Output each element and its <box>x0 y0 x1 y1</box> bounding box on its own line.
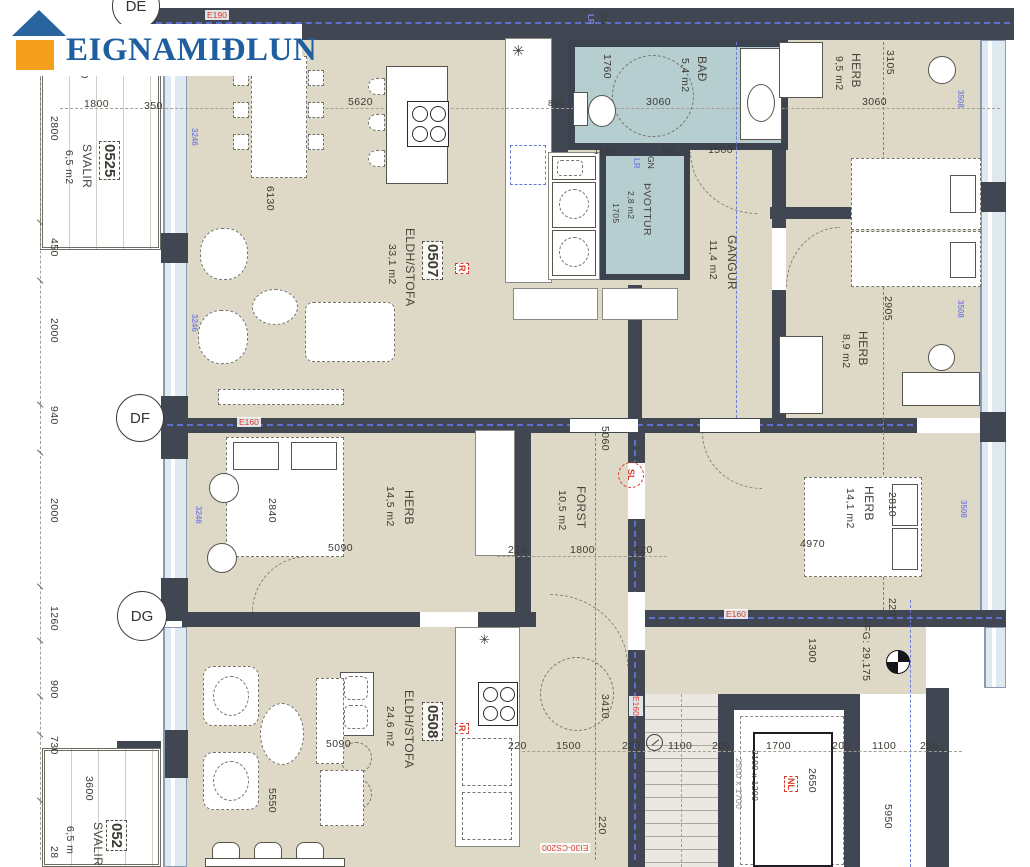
window-tag-3508: 3508 <box>959 500 968 518</box>
elevator-shaft-size: 2500 x 1700 <box>734 758 744 809</box>
sofa-0508 <box>316 678 344 764</box>
fire-tag-ei30: EI30-CS200 <box>540 843 590 853</box>
dim-120-forst: 120 <box>634 544 653 556</box>
dim-bc-1500: 1500 <box>556 740 581 752</box>
armchair <box>198 310 248 364</box>
dim-chain-top <box>60 108 1000 109</box>
door-tag-gn: GN <box>599 12 609 25</box>
toilet <box>573 92 588 126</box>
wardrobe-herb89 <box>779 336 823 414</box>
wall-pier-left-1 <box>161 233 188 263</box>
room-name-0508: ELDH/STOFA <box>402 690 416 768</box>
room-name-0507: ELDH/STOFA <box>403 228 417 306</box>
dim-bc-1700: 1700 <box>766 740 791 752</box>
dim-1760: 1760 <box>601 54 613 79</box>
dim-left-2000b: 2000 <box>48 498 60 523</box>
logo-roof-icon <box>12 10 66 36</box>
dim-1705: 1705 <box>611 203 621 224</box>
chair-herb145 <box>209 473 239 503</box>
dining-chair-0508 <box>254 842 282 859</box>
wall-mullion-right-1 <box>980 182 1006 212</box>
room-name-pvottur: ÞVOTTUR <box>641 183 653 236</box>
dining-table-0508 <box>205 858 345 867</box>
door-opening-0508 <box>420 612 478 627</box>
wardrobe-herb145 <box>475 430 515 556</box>
dim-2840: 2840 <box>266 498 278 523</box>
centerline-4 <box>910 600 911 867</box>
sofa <box>305 302 395 362</box>
brand-logo: EIGNAMIÐLUN <box>8 6 300 74</box>
oval-table-0508 <box>260 703 304 765</box>
fire-tag-e160-entry: E160 <box>724 609 748 619</box>
dim-chain-forst <box>497 556 667 557</box>
dim-220-wall: 220 <box>886 598 898 617</box>
window-left-upper <box>163 40 187 418</box>
armchair-0508 <box>203 666 259 726</box>
armchair <box>200 228 248 280</box>
floor-level-ffg: FFG: 29,175 <box>860 618 872 681</box>
coffee-table <box>252 289 298 325</box>
dim-5060: 5060 <box>599 426 611 451</box>
desk-herb89 <box>902 372 980 406</box>
sl-label: SL <box>626 469 636 481</box>
room-area-herb95: 9,5 m2 <box>833 56 845 91</box>
wall-mullion-right-2 <box>980 412 1006 442</box>
room-area-bad: 5,4 m2 <box>679 58 691 93</box>
dim-1800: 1800 <box>84 98 109 110</box>
dim-left-900: 900 <box>48 680 60 699</box>
dim-145: 145 <box>661 146 676 156</box>
elevator-cab-size: 2100 x 1200 <box>750 750 760 801</box>
grid-marker-df: DF <box>116 394 164 442</box>
dim-5090-0508: 5090 <box>326 738 351 750</box>
dim-3060-herb95: 3060 <box>862 96 887 108</box>
elevator-wall-top <box>718 694 860 710</box>
centerline-1 <box>736 42 737 418</box>
dining-chair <box>308 70 324 86</box>
dim-bc-200b: 200 <box>832 740 851 752</box>
smoke-detector-0508: R <box>455 723 469 734</box>
grid-marker-df-label: DF <box>130 410 150 427</box>
chair-herb145 <box>207 543 237 573</box>
room-area-gangur: 11,4 m2 <box>707 240 719 280</box>
dim-4970: 4970 <box>800 538 825 550</box>
dim-1500-gangur: 1500 <box>708 144 733 156</box>
dim-2650: 2650 <box>806 768 818 793</box>
door-tag-lr-pvottur: LR <box>632 158 641 169</box>
room-area-forst: 10,5 m2 <box>556 490 568 531</box>
dining-chair <box>308 134 324 150</box>
tv-bench <box>218 389 344 405</box>
dim-bc-1100b: 1100 <box>872 740 896 752</box>
room-area-pvottur: 2,8 m2 <box>626 191 636 219</box>
dim-220-stairwall: 220 <box>596 816 608 835</box>
wall-forst-west <box>515 433 531 618</box>
window-tag-3508: 3508 <box>956 90 965 108</box>
dim-2905: 2905 <box>882 296 894 321</box>
unit-id-0525: 0525 <box>99 141 120 180</box>
unit-id-052x: 052 <box>106 820 127 851</box>
kitchen-cabinet-0508 <box>462 792 512 840</box>
dim-left-730: 730 <box>48 736 60 755</box>
chair-herb95 <box>928 56 956 84</box>
hall-closet-2 <box>602 288 678 320</box>
room-name-herb89: HERB <box>856 331 870 366</box>
elevator-wall-right <box>844 694 860 867</box>
dim-bc-250: 250 <box>920 740 939 752</box>
window-tag-3246: 3246 <box>190 128 199 146</box>
dim-5620: 5620 <box>348 96 373 108</box>
fire-tag-e160-stair: E160 <box>629 696 643 716</box>
dim-220-forst: 220 <box>508 544 527 556</box>
north-symbol <box>886 650 910 674</box>
window-right-lower <box>984 627 1006 688</box>
armchair-0508 <box>203 752 259 810</box>
grid-marker-dg-label: DG <box>131 608 154 625</box>
stair-centerline <box>681 694 682 867</box>
sliding-door-marker-sl: SL <box>618 462 644 488</box>
dim-left-940: 940 <box>48 406 60 425</box>
bar-stool <box>368 78 385 95</box>
wall-mid-fire-dashes <box>167 424 913 426</box>
dim-3105: 3105 <box>884 50 896 75</box>
side-table-0508 <box>320 770 364 826</box>
dining-chair <box>233 102 249 118</box>
room-name-svalir-low: SVALIR <box>91 822 105 866</box>
wardrobe-herb95 <box>779 42 823 98</box>
dim-bc-220a: 220 <box>508 740 527 752</box>
floor-plan: DE DF DG SL E190 E160 E160 E160 EI30-CS2… <box>0 0 1030 867</box>
window-tag-3508: 3508 <box>956 300 965 318</box>
room-area-0508: 24,6 m2 <box>384 706 396 747</box>
room-name-gangur: GANGUR <box>725 235 739 290</box>
dim-1800-forst: 1800 <box>570 544 595 556</box>
washing-machine <box>552 182 596 228</box>
dim-5090-herb145: 5090 <box>328 542 353 554</box>
vent-symbol-0508: ✳ <box>479 632 490 648</box>
fire-tag-e160-mid: E160 <box>237 417 261 427</box>
window-tag-3246: 3246 <box>194 506 203 524</box>
dim-1300: 1300 <box>806 638 818 663</box>
bed-herb145 <box>226 437 344 557</box>
kitchen-cabinet-dashed <box>510 145 546 185</box>
window-tag-3246: 3246 <box>190 314 199 332</box>
dim-3600: 3600 <box>83 776 95 801</box>
stove-0508 <box>478 682 518 726</box>
logo-house-icon <box>16 40 54 70</box>
dim-350: 350 <box>144 100 163 112</box>
unit-id-0507: 0507 <box>422 241 443 280</box>
vent-symbol: ✳ <box>512 42 525 60</box>
bar-stool <box>368 150 385 167</box>
wall-right-lower <box>926 688 949 867</box>
window-right-column <box>980 40 1006 618</box>
room-area-svalir-top: 6,5 m2 <box>63 150 75 185</box>
brand-name: EIGNAMIÐLUN <box>66 32 317 69</box>
dining-chair-0508 <box>212 842 240 859</box>
room-name-svalir-top: SVALIR <box>80 144 94 188</box>
smoke-detector-0507: R <box>455 263 469 274</box>
room-area-herb141: 14,1 m2 <box>844 488 856 529</box>
dim-2810: 2810 <box>886 492 898 517</box>
room-name-bad: BAÐ <box>695 56 709 82</box>
dim-left-28: 28 <box>48 846 60 858</box>
stove <box>407 101 449 147</box>
dim-1630: 1630 <box>594 146 615 156</box>
unit-id-0508: 0508 <box>422 702 443 741</box>
dim-bc-200a: 200 <box>712 740 731 752</box>
dim-left-450: 450 <box>48 238 60 257</box>
dim-5950: 5950 <box>882 804 894 829</box>
wall-0508-top <box>182 612 536 627</box>
dim-3410: 3410 <box>599 694 611 719</box>
door-tag-gn-pvottur: GN <box>646 156 656 169</box>
room-name-herb141: HERB <box>862 486 876 521</box>
kitchen-sink-unit <box>340 672 374 736</box>
grid-marker-dg: DG <box>117 591 167 641</box>
dim-left-1260: 1260 <box>48 606 60 631</box>
room-area-herb145: 14,5 m2 <box>384 486 396 527</box>
dim-bc-220b: 220 <box>622 740 641 752</box>
wall-kitchen-bath <box>550 38 568 152</box>
wall-entry-fire-dashes <box>649 617 1002 619</box>
dim-left-2000a: 2000 <box>48 318 60 343</box>
wall-pier-left-low <box>165 730 188 778</box>
bath-sink <box>747 84 775 122</box>
door-swing-symbol <box>646 734 663 751</box>
door-opening-herb89 <box>772 228 786 290</box>
door-opening-entry <box>628 592 645 650</box>
elevator-wall-left <box>718 694 734 867</box>
bed-herb95-2 <box>851 231 981 287</box>
kitchen-cabinet-0508 <box>462 738 512 786</box>
elevator-cab <box>753 732 833 867</box>
floor-landing <box>645 627 926 694</box>
bed-herb95 <box>851 158 981 230</box>
room-name-herb145: HERB <box>402 490 416 525</box>
door-opening-herb141 <box>700 419 760 432</box>
elevator-tag-nl: NL <box>784 776 798 792</box>
chair-herb89 <box>928 344 955 371</box>
dim-845: 845 <box>548 98 563 108</box>
door-tag-lr: LR <box>586 14 595 25</box>
dim-6130: 6130 <box>264 186 276 211</box>
room-area-herb89: 8,9 m2 <box>840 334 852 369</box>
hall-closet-1 <box>513 288 598 320</box>
toilet-bowl <box>588 95 616 127</box>
dim-bc-1100a: 1100 <box>668 740 692 752</box>
dining-chair <box>233 134 249 150</box>
dim-5550: 5550 <box>266 788 278 813</box>
dining-chair-0508 <box>296 842 324 859</box>
room-area-0507: 33,1 m2 <box>386 244 398 285</box>
dim-left-2800: 2800 <box>48 116 60 141</box>
dining-chair <box>308 102 324 118</box>
dim-3060-bad: 3060 <box>646 96 671 108</box>
laundry-sink <box>552 156 596 180</box>
room-name-herb95: HERB <box>849 53 863 88</box>
room-area-svalir-low: 6,5 m <box>64 826 76 854</box>
washing-machine <box>552 230 596 276</box>
room-name-forst: FORST <box>574 486 588 529</box>
bar-stool <box>368 114 385 131</box>
